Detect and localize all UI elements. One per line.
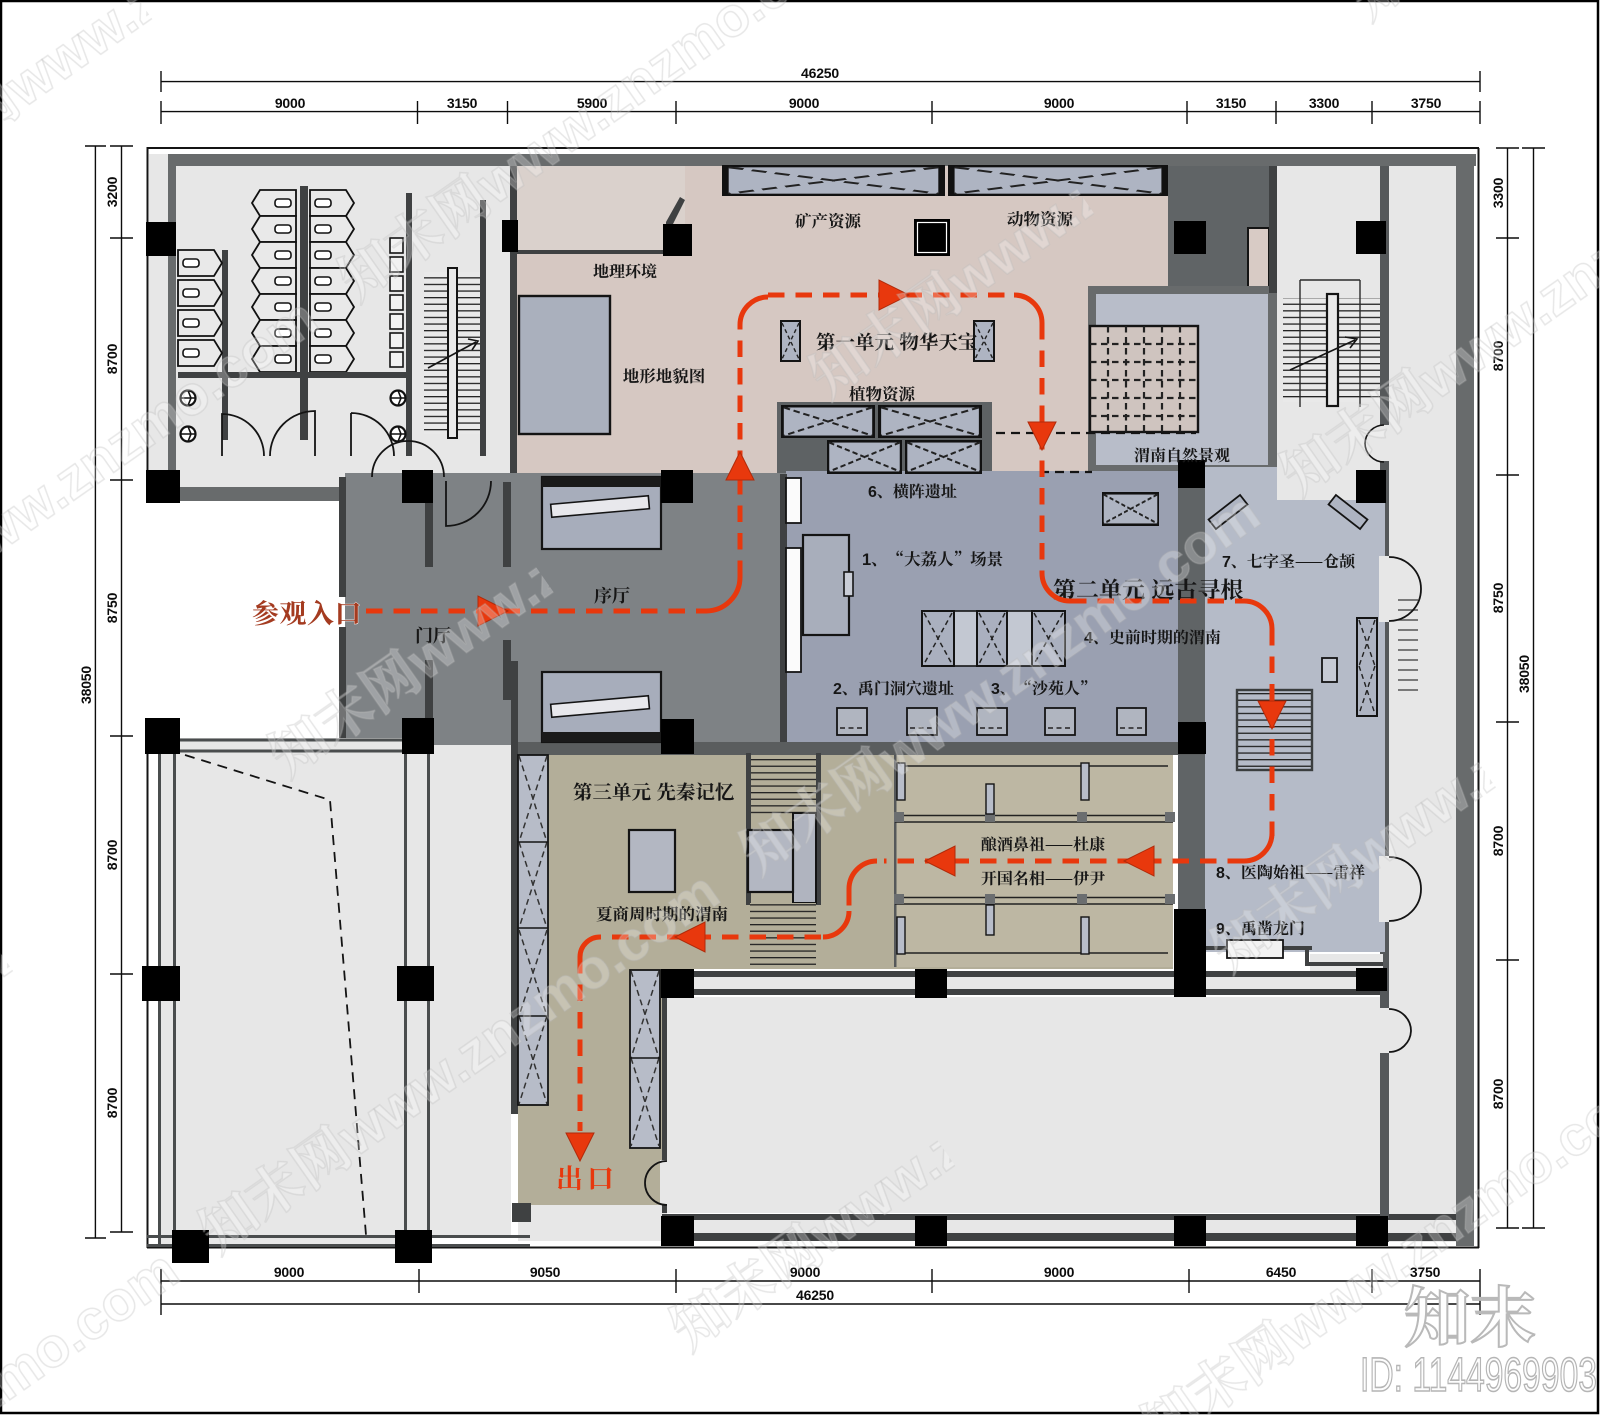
svg-text:ID: 1144969903: ID: 1144969903 [1360,1336,1597,1405]
